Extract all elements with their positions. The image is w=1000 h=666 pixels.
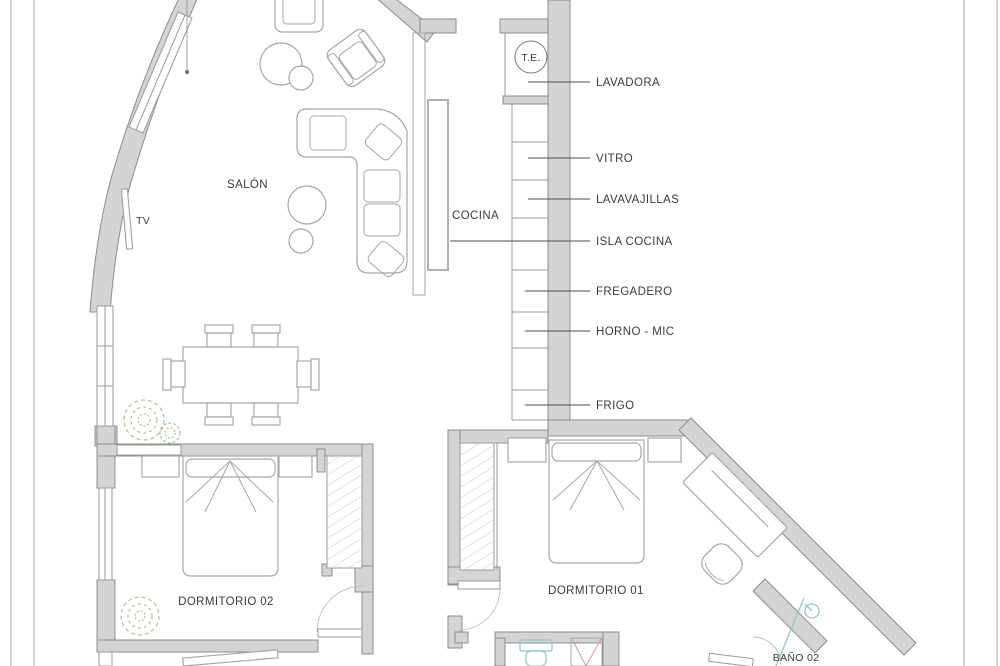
floor-plan-page: TV SALÓN [0,0,1000,666]
dining-table-set [163,325,319,425]
armchair-angled [324,27,387,90]
dorm02-interior-window [117,445,181,455]
callout-isla-cocina: ISLA COCINA [596,236,673,248]
wardrobe-dorm02 [327,456,362,568]
kitchen-tall-cabinets [413,33,425,295]
curved-exterior-wall [90,0,199,312]
callout-fregadero: FREGADERO [596,286,672,298]
toilet [520,640,552,666]
kitchen-top-wall-left [420,19,456,33]
coffee-table-small [289,66,313,90]
kitchen-island [428,100,448,270]
nightstand-dorm01-left [508,438,546,462]
lower-left-window [99,652,112,666]
dorm01-label: DORMITORIO 01 [548,585,644,597]
door-dorm01 [458,581,500,630]
te-label: T.E. [521,52,540,64]
side-table-small [289,229,313,253]
windows [97,12,192,666]
cocina-label: COCINA [452,210,499,222]
dorm02-label: DORMITORIO 02 [178,596,274,608]
plant-dining-small [160,423,180,443]
bano02-inner-wall [753,579,827,653]
dorm02-bottom-wall [97,640,318,652]
bath-right-wall [603,632,619,666]
plant-dorm02 [121,597,159,635]
tv [121,189,132,249]
callout-frigo: FRIGO [596,400,634,412]
bath-top-wall-left [455,632,468,643]
cocina-area: COCINA T.E. [413,33,548,420]
tv-label: TV [136,215,150,227]
nightstand-dorm02-left [142,456,179,477]
callout-lavadora: LAVADORA [596,77,660,89]
callout-lavavajillas: LAVAVAJILLAS [596,194,679,206]
dorm01-wardrobe-left-wall [448,430,460,585]
side-table-large [288,186,326,224]
wardrobe-dorm01 [460,443,497,570]
callout-horno-mic: HORNO - MIC [596,326,675,338]
nightstand-dorm01-right [648,438,681,462]
bath-inner-stub [495,638,505,666]
dining-table [183,347,298,403]
callout-vitro: VITRO [596,153,633,165]
desk-chair-dorm01 [697,539,746,588]
nightstand-dorm02-right [279,456,312,477]
kitchen-counter-cells [512,103,548,420]
door-dorm02 [317,586,363,637]
bed-dorm01 [549,440,644,563]
dorm02-right-wall [362,444,373,654]
bano02-door-leaf [709,653,754,666]
kitchen-top-wall-right [500,19,548,33]
plant-dining-large [124,400,164,440]
kitchen-right-wall [548,0,570,420]
pendant-dot [185,70,189,74]
dorm02-left-wall-lower [97,580,115,644]
armchair-top [275,0,323,32]
te-closet-stub [503,96,548,104]
dorm02-wardrobe-stub-top [317,449,325,472]
floor-plan-canvas: TV SALÓN [0,0,1000,666]
dorm01-top-wall-right [548,420,693,436]
dorm02-wardrobe-base [355,566,373,592]
dorm02-left-wall-upper [97,426,115,488]
dormitorio-02-room: DORMITORIO 02 [121,456,363,666]
salon-label: SALÓN [227,178,268,191]
bed-dorm02 [183,456,278,576]
bano02-label: BAÑO 02 [773,651,819,664]
